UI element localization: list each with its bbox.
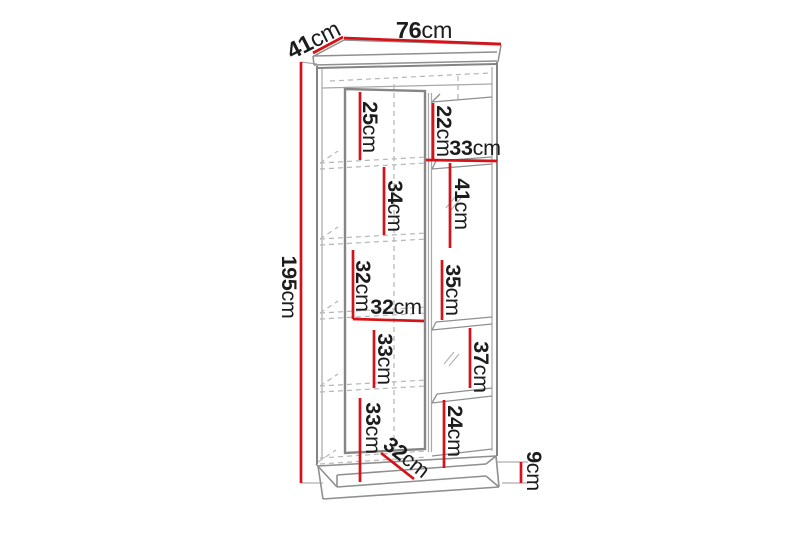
dim-label-left-bottom: 33cm xyxy=(361,402,385,453)
dim-label-right-bottom: 24cm xyxy=(443,405,467,456)
dim-label-right-width: 33cm xyxy=(449,136,500,160)
dim-label-right-4: 37cm xyxy=(469,341,493,392)
dim-label-plinth: 9cm xyxy=(522,451,546,491)
dim-label-left-4: 33cm xyxy=(373,333,397,384)
dim-line-right-width xyxy=(426,160,497,161)
dimension-diagram-canvas: 76cm 41cm 195cm 25cm 34cm 32cm 32cm 33cm… xyxy=(0,0,800,533)
dim-label-left-2: 34cm xyxy=(383,180,407,231)
dim-label-width: 76cm xyxy=(396,17,452,43)
diagram-page: 76cm 41cm 195cm 25cm 34cm 32cm 32cm 33cm… xyxy=(0,0,800,533)
dimension-extension-lines xyxy=(301,62,528,483)
center-partition xyxy=(429,93,432,452)
dim-label-right-2: 41cm xyxy=(450,178,474,229)
dim-line-left-width xyxy=(353,319,424,321)
dim-label-left-width: 32cm xyxy=(370,295,421,319)
dim-label-right-3: 35cm xyxy=(441,264,465,315)
dim-label-height: 195cm xyxy=(277,255,301,318)
dim-label-left-top: 25cm xyxy=(358,101,382,152)
